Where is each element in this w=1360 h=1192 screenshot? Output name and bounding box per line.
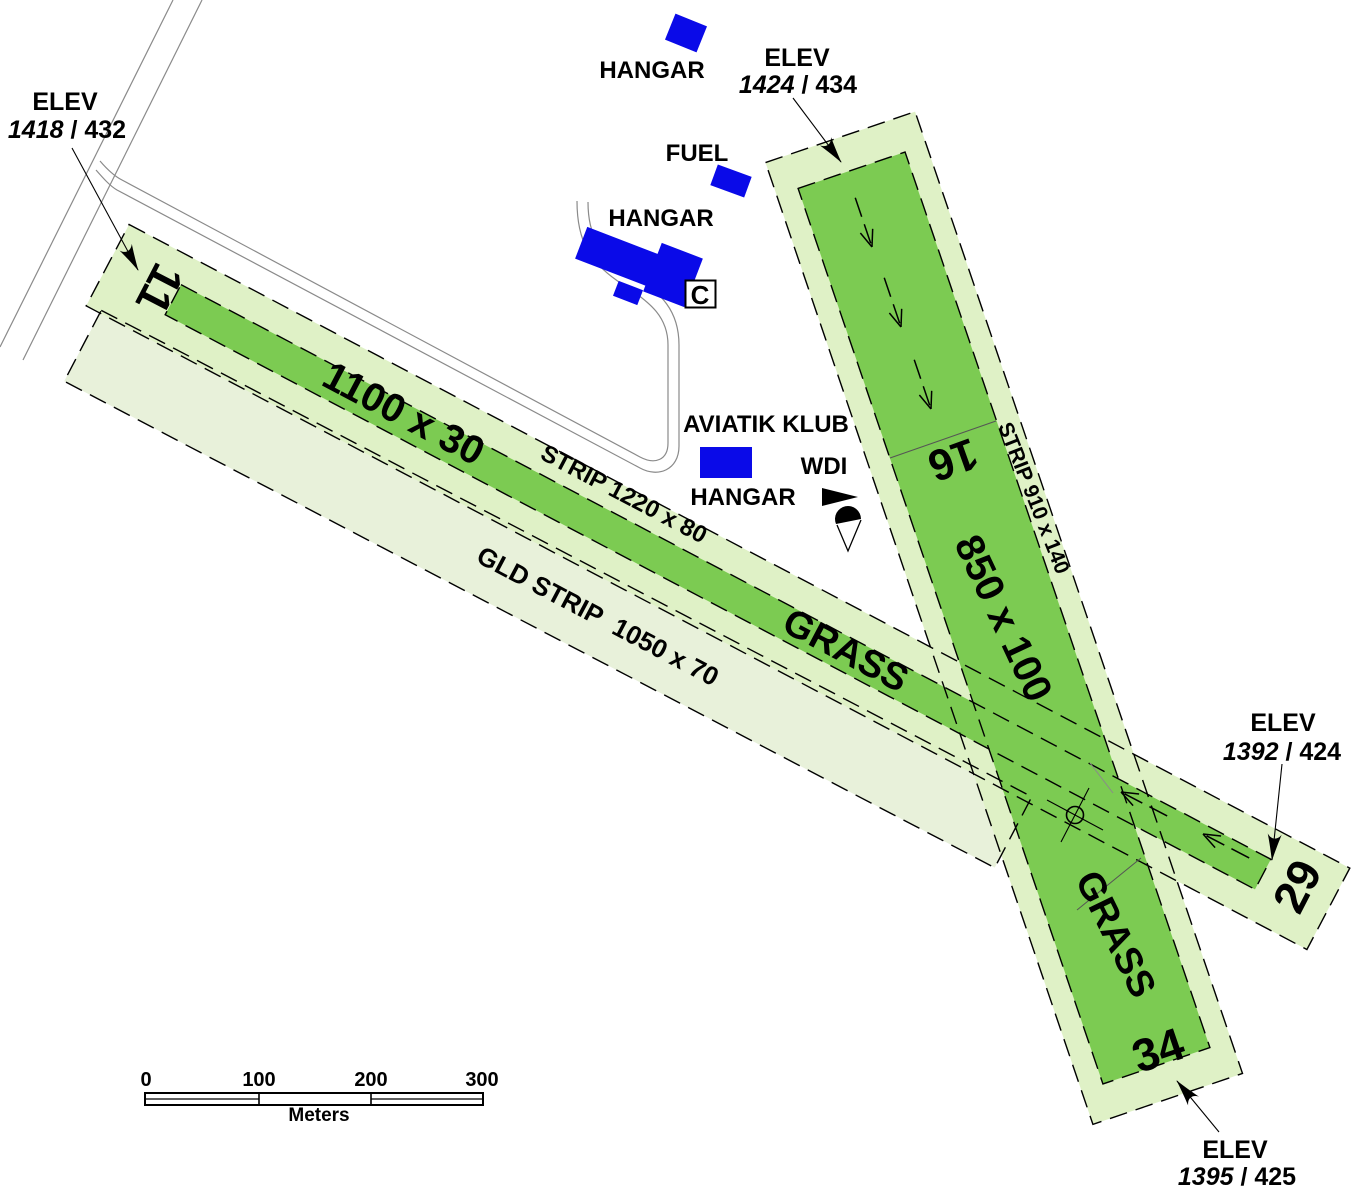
elev-south-m: 425 — [1254, 1163, 1296, 1191]
elev-northeast-ft: 1424 — [739, 71, 795, 99]
elev-south-value: 1395 / 425 — [1178, 1163, 1296, 1191]
elev-east-ft: 1392 — [1223, 738, 1279, 766]
wdi-label: WDI — [801, 453, 848, 480]
elev-northeast-title: ELEV — [764, 44, 830, 72]
elev-northwest-m: 432 — [84, 116, 126, 144]
elev-south-title: ELEV — [1202, 1136, 1268, 1164]
elev-northeast-sep: / — [795, 71, 816, 99]
fuel-label: FUEL — [666, 140, 729, 167]
elev-northeast-value: 1424 / 434 — [739, 71, 857, 99]
aviatik-klub-label-line1: AVIATIK KLUB — [683, 411, 849, 438]
aerodrome-chart: C HANGAR FUEL HANGAR AVIATIK KLUB HANGAR… — [0, 0, 1360, 1192]
elev-east-m: 424 — [1299, 738, 1341, 766]
aviatik-klub-hangar-building — [700, 447, 752, 478]
elev-northwest-ft: 1418 — [8, 116, 64, 144]
scale-unit-label: Meters — [288, 1105, 349, 1126]
hangar-north-label: HANGAR — [599, 57, 704, 84]
elev-south-ft: 1395 — [1178, 1163, 1235, 1191]
hangar-c-label: HANGAR — [608, 205, 713, 232]
chart-canvas: C HANGAR FUEL HANGAR AVIATIK KLUB HANGAR… — [0, 0, 1360, 1192]
hangar-c-code-label: C — [691, 280, 710, 310]
elev-east-title: ELEV — [1250, 709, 1316, 737]
elev-northwest-sep: / — [64, 116, 85, 144]
aviatik-klub-label-line2: HANGAR — [690, 484, 795, 511]
elev-east-sep: / — [1279, 738, 1300, 766]
elev-northwest-title: ELEV — [32, 88, 98, 116]
elev-northwest-value: 1418 / 432 — [8, 116, 126, 144]
scale-tick-100: 100 — [242, 1069, 275, 1091]
scale-tick-200: 200 — [354, 1069, 387, 1091]
elev-northeast-m: 434 — [815, 71, 857, 99]
elev-east-value: 1392 / 424 — [1223, 738, 1341, 766]
scale-tick-300: 300 — [465, 1069, 498, 1091]
elev-south-sep: / — [1234, 1163, 1255, 1191]
scale-tick-0: 0 — [140, 1069, 151, 1091]
hangar-c-code-box: C — [686, 280, 716, 310]
